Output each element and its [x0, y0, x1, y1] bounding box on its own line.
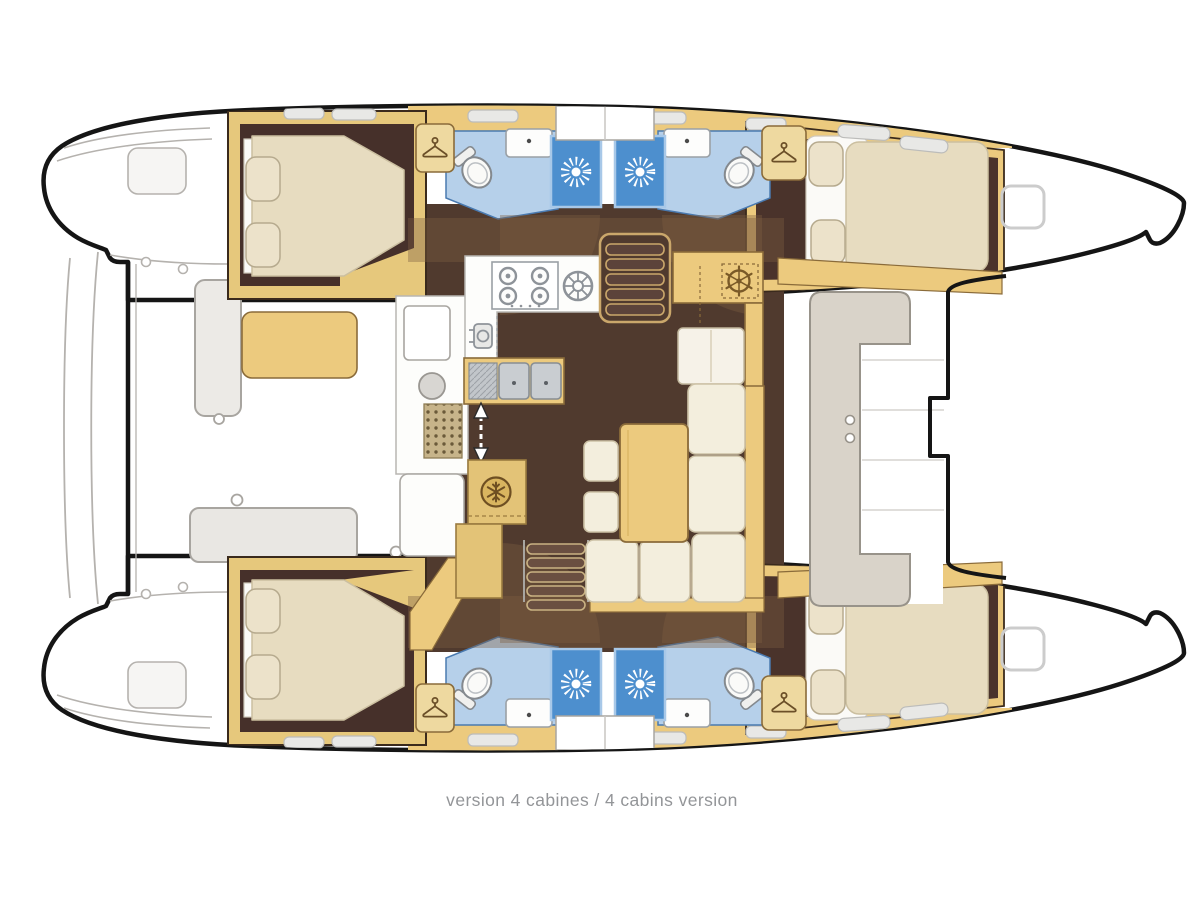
floorplan-page: version 4 cabines / 4 cabins version [0, 0, 1200, 900]
companionway-landing-port [556, 106, 654, 140]
stool [584, 492, 618, 532]
sofa-cushion [688, 384, 745, 454]
wardrobe [416, 684, 454, 732]
davits [64, 252, 136, 604]
galley-locker [404, 306, 450, 360]
bathroom-port-aft [446, 129, 558, 219]
pillow [811, 220, 845, 264]
sofa-backrest [745, 386, 764, 608]
wardrobe [762, 126, 806, 180]
sofa-cushion [586, 540, 638, 602]
double-sink [464, 358, 564, 404]
pillow [809, 142, 843, 186]
deck-fitting [846, 416, 855, 425]
cockpit-aft-seat [242, 312, 357, 378]
pillow [811, 670, 845, 714]
stove [492, 262, 558, 309]
sofa-cushion [640, 540, 690, 602]
caption: version 4 cabines / 4 cabins version [0, 790, 1184, 811]
cockpit-ring [214, 414, 224, 424]
shower-stall [615, 136, 665, 207]
bathroom-port-forward [658, 129, 770, 219]
cockpit-side-bench [195, 280, 241, 416]
sofa-cushion [692, 534, 745, 602]
waste-bin [419, 373, 445, 399]
sofa-cushion [688, 456, 745, 532]
floorplan-canvas [0, 0, 1200, 900]
cockpit-ring [232, 495, 243, 506]
shower-stall [551, 136, 601, 207]
stairs-to-starboard-hull [524, 540, 588, 610]
saloon-table [620, 424, 688, 542]
shower-stall [615, 649, 665, 720]
stairs-to-port-hull [600, 234, 670, 322]
pillow [246, 655, 280, 699]
pillow [246, 223, 280, 267]
aft-cockpit [190, 280, 402, 562]
companionway-landing-starboard [556, 716, 654, 750]
pillow [246, 157, 280, 201]
galley-cabinet [400, 474, 464, 556]
double-bed [846, 142, 988, 272]
deck-fitting [846, 434, 855, 443]
cockpit-bench-starboard [190, 508, 357, 562]
snowflake-icon [482, 478, 511, 507]
pillow [246, 589, 280, 633]
aft-cabin-port [228, 111, 426, 299]
shower-stall [551, 649, 601, 720]
stool [584, 441, 618, 481]
wardrobe [762, 676, 806, 730]
bathroom-starboard-forward [658, 637, 770, 727]
wardrobe [416, 124, 454, 172]
aft-cabin-starboard [228, 557, 426, 745]
bathroom-starboard-aft [446, 637, 558, 727]
floor-grate [424, 404, 462, 458]
